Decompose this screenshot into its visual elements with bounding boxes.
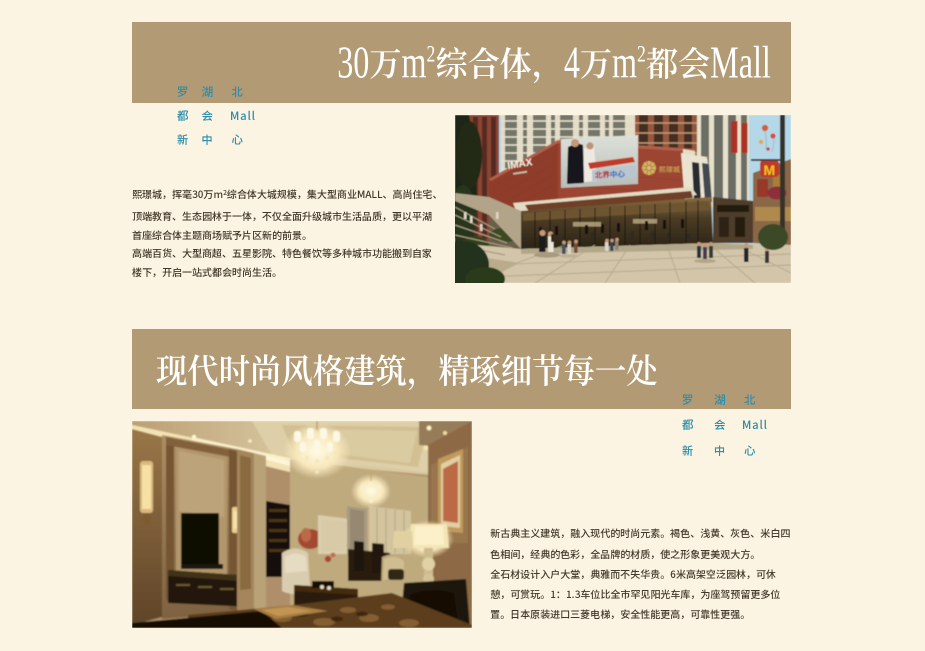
- svg-text:北界中心: 北界中心: [594, 168, 626, 181]
- svg-text:熙璟城: 熙璟城: [658, 165, 680, 175]
- svg-text:M: M: [764, 162, 776, 178]
